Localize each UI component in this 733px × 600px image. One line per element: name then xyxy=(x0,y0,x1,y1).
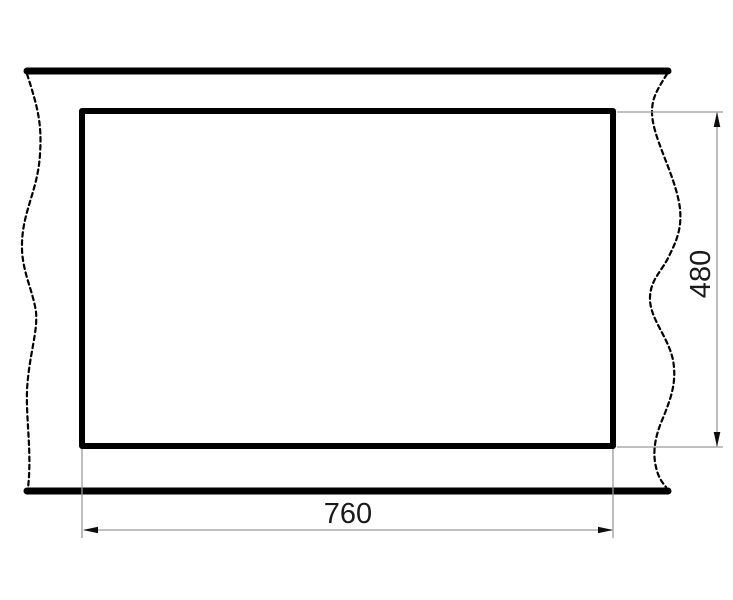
cutout-dimension-diagram: 480 760 xyxy=(0,0,733,600)
width-dimension-label: 760 xyxy=(324,498,372,530)
height-dimension-label: 480 xyxy=(685,250,717,298)
dimension-drawing-canvas: 480 760 xyxy=(0,0,733,600)
